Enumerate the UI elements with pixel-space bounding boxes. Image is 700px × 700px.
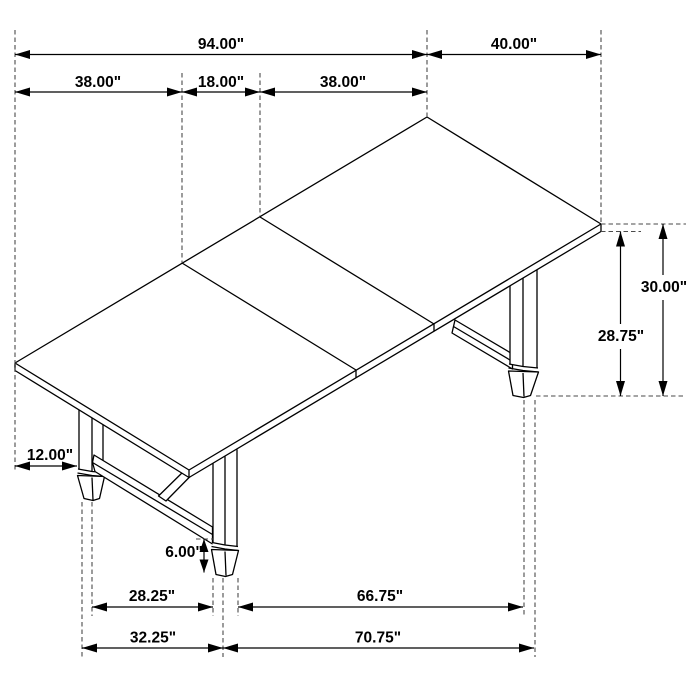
dim-label-overall-length: 94.00" (198, 36, 244, 53)
leg-front-right (509, 270, 539, 398)
arrowhead (15, 50, 30, 59)
arrowhead (659, 224, 668, 239)
arrowhead (223, 644, 238, 653)
dim-label-leg-inset: 12.00" (27, 447, 73, 464)
arrowhead (167, 88, 182, 97)
arrowhead (508, 603, 523, 612)
dim-label-height: 30.00" (641, 279, 687, 296)
arrowhead (238, 603, 253, 612)
dim-label-span-front-outer: 70.75" (355, 630, 401, 647)
leg-foot (78, 476, 105, 501)
arrowhead (200, 560, 209, 573)
arrowhead (82, 644, 97, 653)
cross-stretcher-right (452, 320, 513, 369)
stretcher-edge-line (454, 327, 513, 362)
dim-label-leaf: 18.00" (198, 74, 244, 91)
dim-label-feet-span-inner: 28.25" (129, 588, 175, 605)
stretcher-beam (452, 320, 513, 369)
table-dimension-drawing: 94.00" 40.00" 38.00" 18.00" 38.00" 30.00… (0, 0, 700, 700)
table-illustration (15, 117, 601, 577)
arrowhead (616, 232, 625, 247)
arrowhead (412, 50, 427, 59)
dim-label-width: 40.00" (491, 36, 537, 53)
dim-label-foot-height: 6.00" (165, 544, 203, 561)
arrowhead (182, 88, 197, 97)
arrowhead (245, 88, 260, 97)
dim-label-section-left: 38.00" (75, 74, 121, 91)
arrowhead (659, 381, 668, 396)
arrowhead (15, 88, 30, 97)
arrowhead (616, 381, 625, 396)
arrowhead (260, 88, 275, 97)
dim-label-span-front-inner: 66.75" (357, 588, 403, 605)
arrowhead (519, 644, 534, 653)
arrowhead (92, 603, 107, 612)
dim-label-feet-span-outer: 32.25" (130, 630, 176, 647)
arrowhead (586, 50, 601, 59)
dimension-drawing-page: 94.00" 40.00" 38.00" 18.00" 38.00" 30.00… (0, 0, 700, 700)
dim-label-height-to-underside: 28.75" (598, 328, 644, 345)
arrowhead (412, 88, 427, 97)
arrowhead (198, 603, 213, 612)
arrowhead (208, 644, 223, 653)
dim-label-section-right: 38.00" (320, 74, 366, 91)
arrowhead (427, 50, 442, 59)
leg-front-left (212, 449, 239, 577)
